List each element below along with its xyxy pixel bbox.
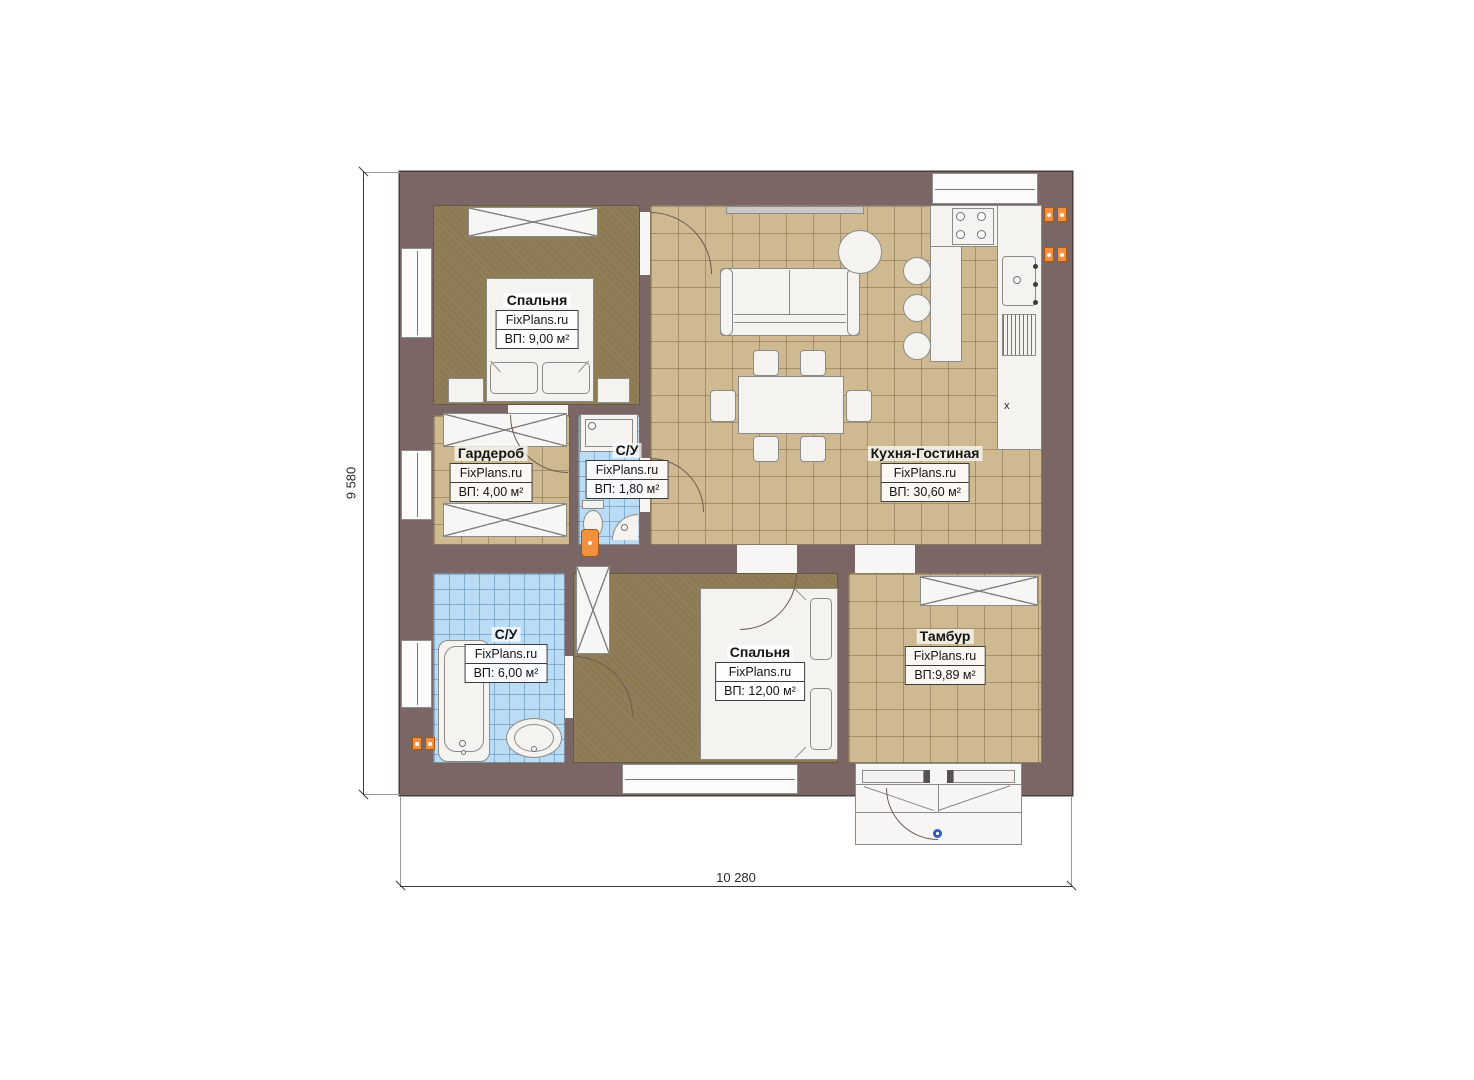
window-kitchen xyxy=(932,173,1038,204)
room-label-wardrobe: Гардероб FixPlans.ru ВП: 4,00 м² xyxy=(450,446,533,502)
room-info-box: FixPlans.ru ВП: 4,00 м² xyxy=(450,463,533,502)
chair-icon xyxy=(753,436,779,462)
boiler-icon xyxy=(581,529,599,557)
vent-icon xyxy=(412,737,435,750)
sink-drain-icon xyxy=(1013,276,1021,284)
room-info-box: FixPlans.ru ВП: 12,00 м² xyxy=(715,662,805,701)
washbasin-drain-icon xyxy=(531,746,537,752)
closet-icon xyxy=(576,566,610,654)
burner-icon xyxy=(977,230,986,239)
vent-cell xyxy=(412,737,422,750)
door-opening-bathroom-main xyxy=(565,656,573,718)
sofa-backrest-line xyxy=(734,314,846,315)
room-area: ВП: 30,60 м² xyxy=(881,483,969,501)
room-info-box: FixPlans.ru ВП: 9,00 м² xyxy=(496,310,579,349)
window-bedroom-2 xyxy=(622,764,798,794)
pillow-icon xyxy=(810,688,832,750)
burner-icon xyxy=(956,230,965,239)
room-label-bedroom-2: Спальня FixPlans.ru ВП: 12,00 м² xyxy=(715,645,805,701)
room-label-bathroom-main: С/У FixPlans.ru ВП: 6,00 м² xyxy=(465,627,548,683)
shower-drain-icon xyxy=(588,422,596,430)
vent-cell xyxy=(1044,207,1054,222)
floor-plan-canvas: x xyxy=(0,0,1474,1080)
nightstand-icon xyxy=(448,378,484,403)
window-wardrobe xyxy=(401,450,432,520)
room-label-bedroom-1: Спальня FixPlans.ru ВП: 9,00 м² xyxy=(496,293,579,349)
bathtub-drain-icon xyxy=(461,750,466,755)
chair-icon xyxy=(800,350,826,376)
room-name: С/У xyxy=(613,443,642,458)
room-name: Спальня xyxy=(727,645,793,660)
watermark-text: FixPlans.ru xyxy=(466,645,547,664)
room-label-vestibule: Тамбур FixPlans.ru ВП:9,89 м² xyxy=(905,629,986,685)
tv-icon xyxy=(726,206,864,214)
door-jamb-mark xyxy=(947,770,953,783)
vent-icon xyxy=(1044,247,1067,262)
pillow-icon xyxy=(810,598,832,660)
room-area: ВП: 9,00 м² xyxy=(497,330,578,348)
sofa-armrest xyxy=(720,268,733,336)
bar-counter-icon xyxy=(930,246,962,362)
entrance-door-leaf xyxy=(953,770,1015,783)
washbasin-drain-icon xyxy=(621,524,628,531)
bar-stool-icon xyxy=(903,294,931,322)
room-name: Кухня-Гостиная xyxy=(868,446,983,461)
door-opening-bedroom-1 xyxy=(640,212,650,275)
door-jamb-mark xyxy=(924,770,930,783)
chair-icon xyxy=(710,390,736,422)
appliance-knob xyxy=(1033,300,1038,305)
chair-icon xyxy=(753,350,779,376)
door-hinge-marker xyxy=(933,829,942,838)
chair-icon xyxy=(800,436,826,462)
burner-icon xyxy=(956,212,965,221)
burner-icon xyxy=(977,212,986,221)
closet-icon xyxy=(468,207,598,237)
nightstand-icon xyxy=(597,378,630,403)
vent-cell xyxy=(1044,247,1054,262)
watermark-text: FixPlans.ru xyxy=(451,464,532,483)
door-center-line xyxy=(938,784,939,812)
chair-icon xyxy=(846,390,872,422)
bathtub-faucet-icon xyxy=(459,740,466,747)
room-area: ВП: 1,80 м² xyxy=(587,480,668,498)
dimension-label-width: 10 280 xyxy=(716,870,756,885)
room-area: ВП: 6,00 м² xyxy=(466,664,547,682)
room-label-bathroom-small: С/У FixPlans.ru ВП: 1,80 м² xyxy=(586,443,669,499)
appliance-knob xyxy=(1033,282,1038,287)
porch-step-line xyxy=(856,812,1021,813)
dimension-line-vertical xyxy=(363,172,364,795)
room-info-box: FixPlans.ru ВП:9,89 м² xyxy=(905,646,986,685)
dimension-line-horizontal xyxy=(400,886,1072,887)
window-bedroom-1 xyxy=(401,248,432,338)
bar-stool-icon xyxy=(903,332,931,360)
sofa-backrest-line xyxy=(734,322,846,323)
sofa-cushion-divider xyxy=(789,270,790,314)
door-opening-bedroom-2 xyxy=(737,545,797,573)
round-table-icon xyxy=(838,230,882,274)
vent-cell xyxy=(425,737,435,750)
extension-line xyxy=(1071,797,1072,886)
appliance-x-mark: x xyxy=(1004,400,1010,412)
vent-icon xyxy=(1044,207,1067,222)
bar-stool-icon xyxy=(903,257,931,285)
extension-line xyxy=(364,172,400,173)
dimension-label-height: 9 580 xyxy=(344,467,359,500)
watermark-text: FixPlans.ru xyxy=(716,663,804,682)
dining-table-icon xyxy=(738,376,844,434)
extension-line xyxy=(400,797,401,886)
room-area: ВП: 12,00 м² xyxy=(716,682,804,700)
room-name: Тамбур xyxy=(917,629,974,644)
appliance-knob xyxy=(1033,264,1038,269)
passage-vestibule xyxy=(855,545,915,573)
room-label-kitchen-living: Кухня-Гостиная FixPlans.ru ВП: 30,60 м² xyxy=(868,446,983,502)
vent-cell xyxy=(1057,207,1067,222)
vent-cell xyxy=(1057,247,1067,262)
toilet-tank-icon xyxy=(582,500,604,509)
watermark-text: FixPlans.ru xyxy=(587,461,668,480)
room-name: Спальня xyxy=(504,293,570,308)
watermark-text: FixPlans.ru xyxy=(497,311,578,330)
dishwasher-icon xyxy=(1002,314,1036,356)
room-name: Гардероб xyxy=(455,446,527,461)
closet-icon xyxy=(443,503,567,537)
extension-line xyxy=(364,794,400,795)
watermark-text: FixPlans.ru xyxy=(881,464,969,483)
entrance-door-leaf xyxy=(862,770,924,783)
room-info-box: FixPlans.ru ВП: 6,00 м² xyxy=(465,644,548,683)
watermark-text: FixPlans.ru xyxy=(906,647,985,666)
room-area: ВП:9,89 м² xyxy=(906,666,985,684)
window-bathroom-main xyxy=(401,640,432,708)
sofa-armrest xyxy=(847,268,860,336)
room-info-box: FixPlans.ru ВП: 30,60 м² xyxy=(880,463,970,502)
room-area: ВП: 4,00 м² xyxy=(451,483,532,501)
room-name: С/У xyxy=(492,627,521,642)
room-info-box: FixPlans.ru ВП: 1,80 м² xyxy=(586,460,669,499)
closet-icon xyxy=(920,576,1038,606)
sofa-icon xyxy=(720,268,860,336)
